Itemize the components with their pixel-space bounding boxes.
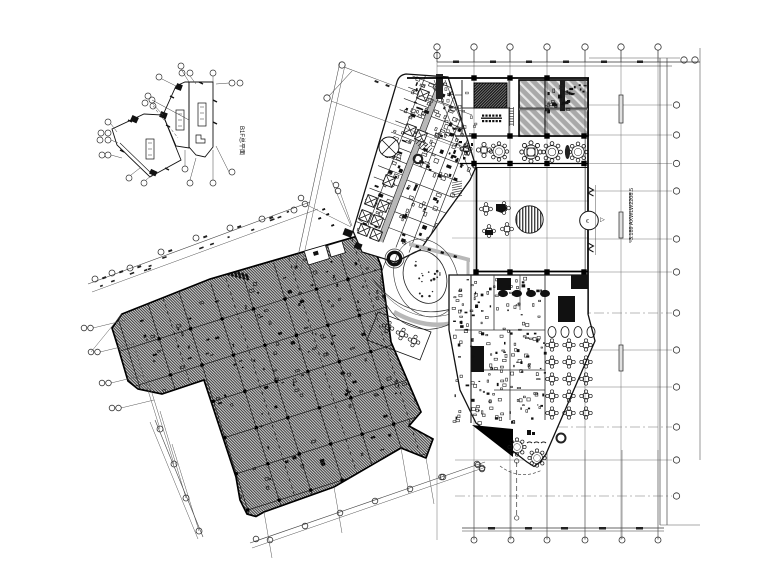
svg-text:▽: ▽ <box>600 217 606 222</box>
svg-text:€: € <box>586 219 589 225</box>
svg-text:B1F总平面: B1F总平面 <box>238 126 246 155</box>
